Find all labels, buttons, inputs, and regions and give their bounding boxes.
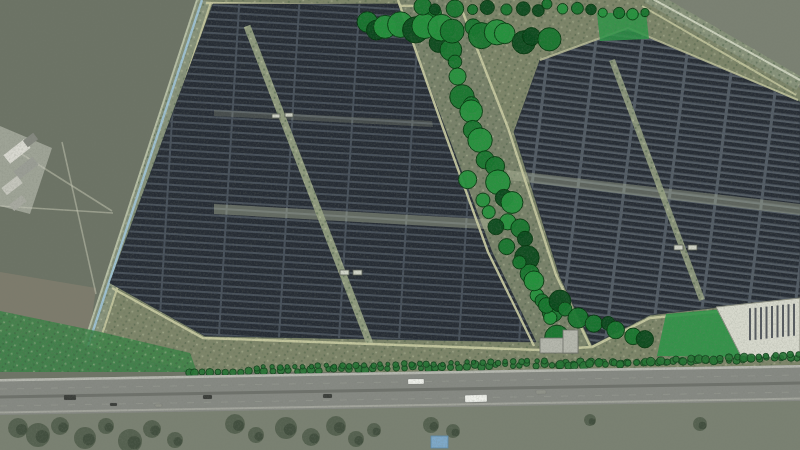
photo-grain-overlay <box>0 0 800 450</box>
photo-grain <box>0 0 800 450</box>
scene-layers <box>0 0 800 450</box>
aerial-view: Aerial visualization of a solar farm bes… <box>0 0 800 450</box>
solar-farm-aerial-map: Aerial visualization of a solar farm bes… <box>0 0 800 450</box>
